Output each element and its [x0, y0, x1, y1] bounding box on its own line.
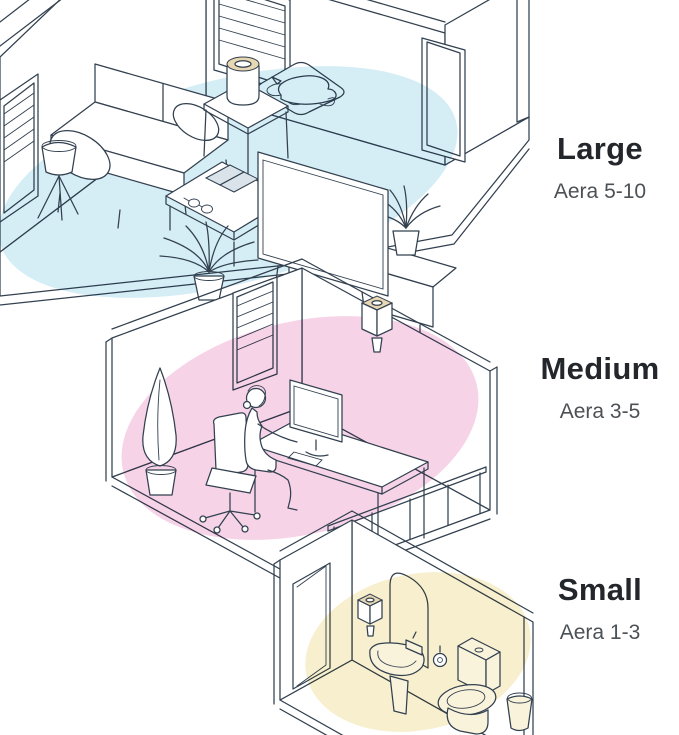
- room-size-title-large: Large: [522, 132, 678, 166]
- waste-bin: [507, 693, 532, 731]
- aera-diffuser-table: [227, 57, 259, 105]
- room-coverage-small: Aera 1-3: [522, 621, 678, 645]
- label-large: Large Aera 5-10: [522, 132, 678, 204]
- room-size-title-medium: Medium: [522, 352, 678, 386]
- label-medium: Medium Aera 3-5: [522, 352, 678, 424]
- room-size-guide: Large Aera 5-10 Medium Aera 3-5 Small Ae…: [0, 0, 679, 735]
- room-coverage-large: Aera 5-10: [522, 180, 678, 204]
- room-coverage-medium: Aera 3-5: [522, 400, 678, 424]
- bathroom-small: [274, 511, 546, 735]
- label-small: Small Aera 1-3: [522, 573, 678, 645]
- room-size-title-small: Small: [522, 573, 678, 607]
